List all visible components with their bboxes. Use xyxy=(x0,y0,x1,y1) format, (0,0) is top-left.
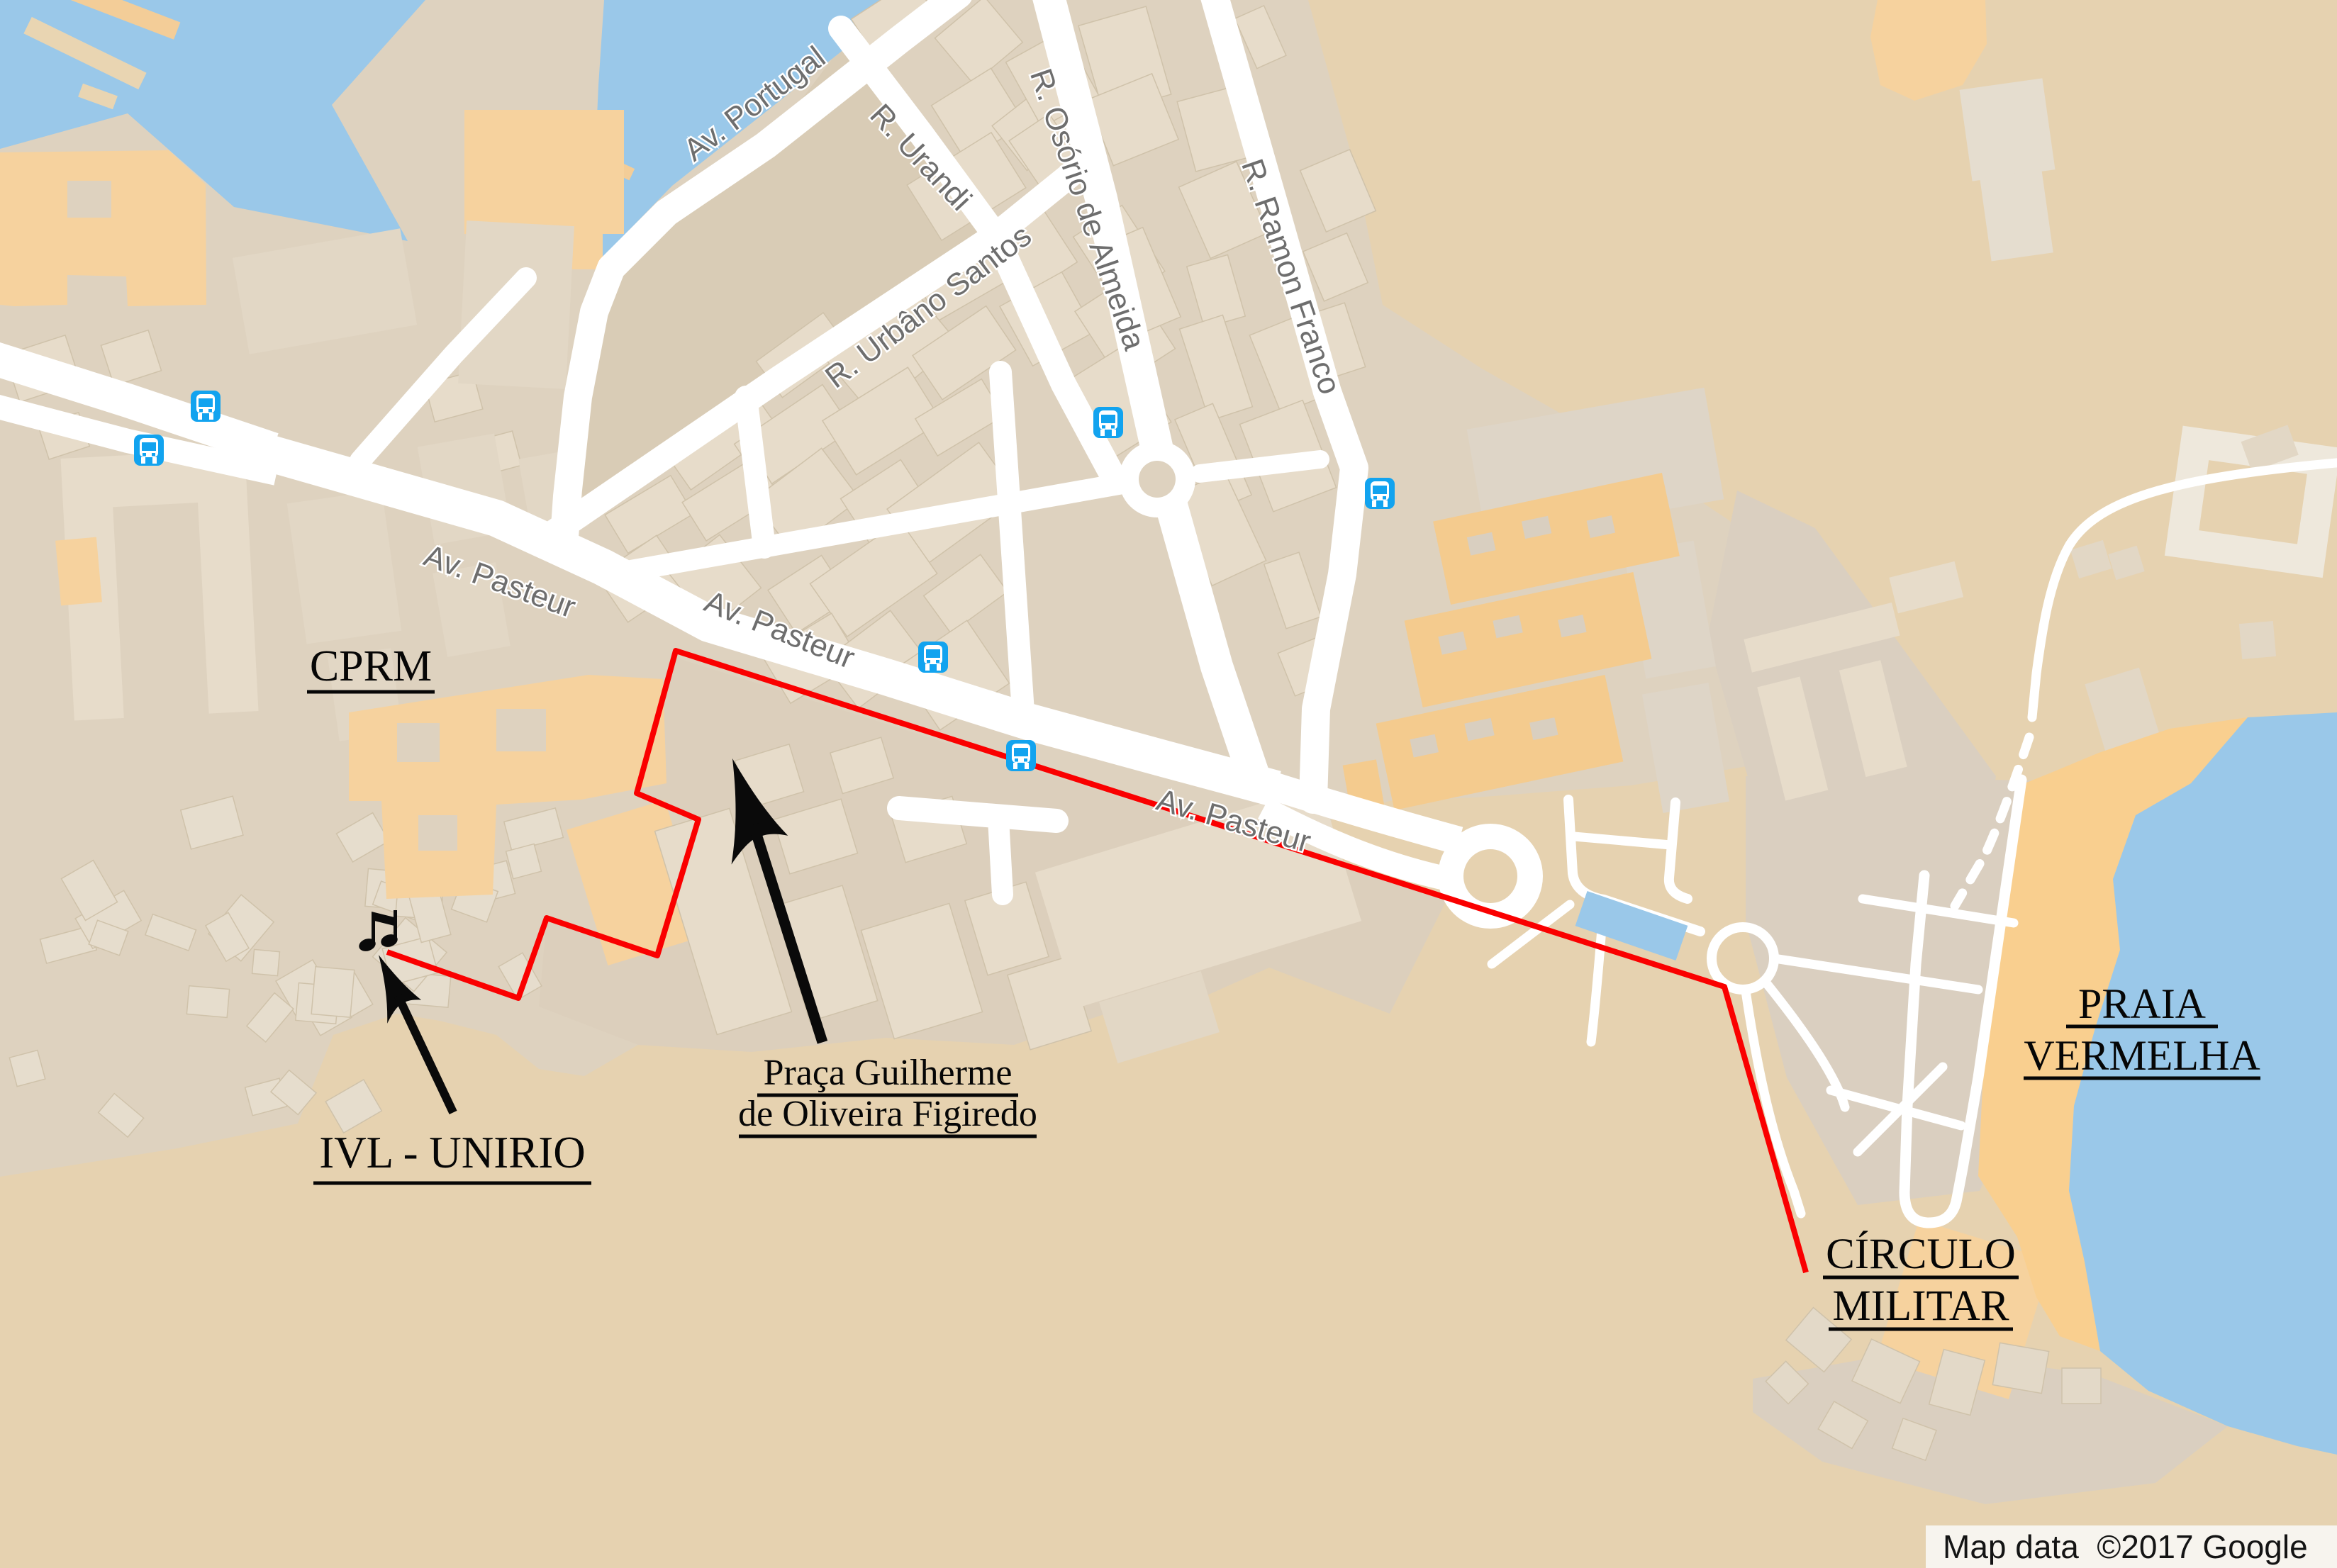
svg-text:Map data ©2017 Google: Map data ©2017 Google xyxy=(1943,1528,2308,1565)
svg-text:IVL - UNIRIO: IVL - UNIRIO xyxy=(319,1128,586,1177)
svg-text:MILITAR: MILITAR xyxy=(1832,1282,2009,1330)
svg-text:VERMELHA: VERMELHA xyxy=(2024,1032,2260,1079)
svg-text:Praça Guilherme: Praça Guilherme xyxy=(764,1053,1013,1093)
svg-text:CPRM: CPRM xyxy=(310,642,432,690)
svg-text:de Oliveira Figiredo: de Oliveira Figiredo xyxy=(738,1094,1037,1134)
svg-text:PRAIA: PRAIA xyxy=(2078,980,2206,1027)
svg-text:CÍRCULO: CÍRCULO xyxy=(1826,1231,2016,1278)
